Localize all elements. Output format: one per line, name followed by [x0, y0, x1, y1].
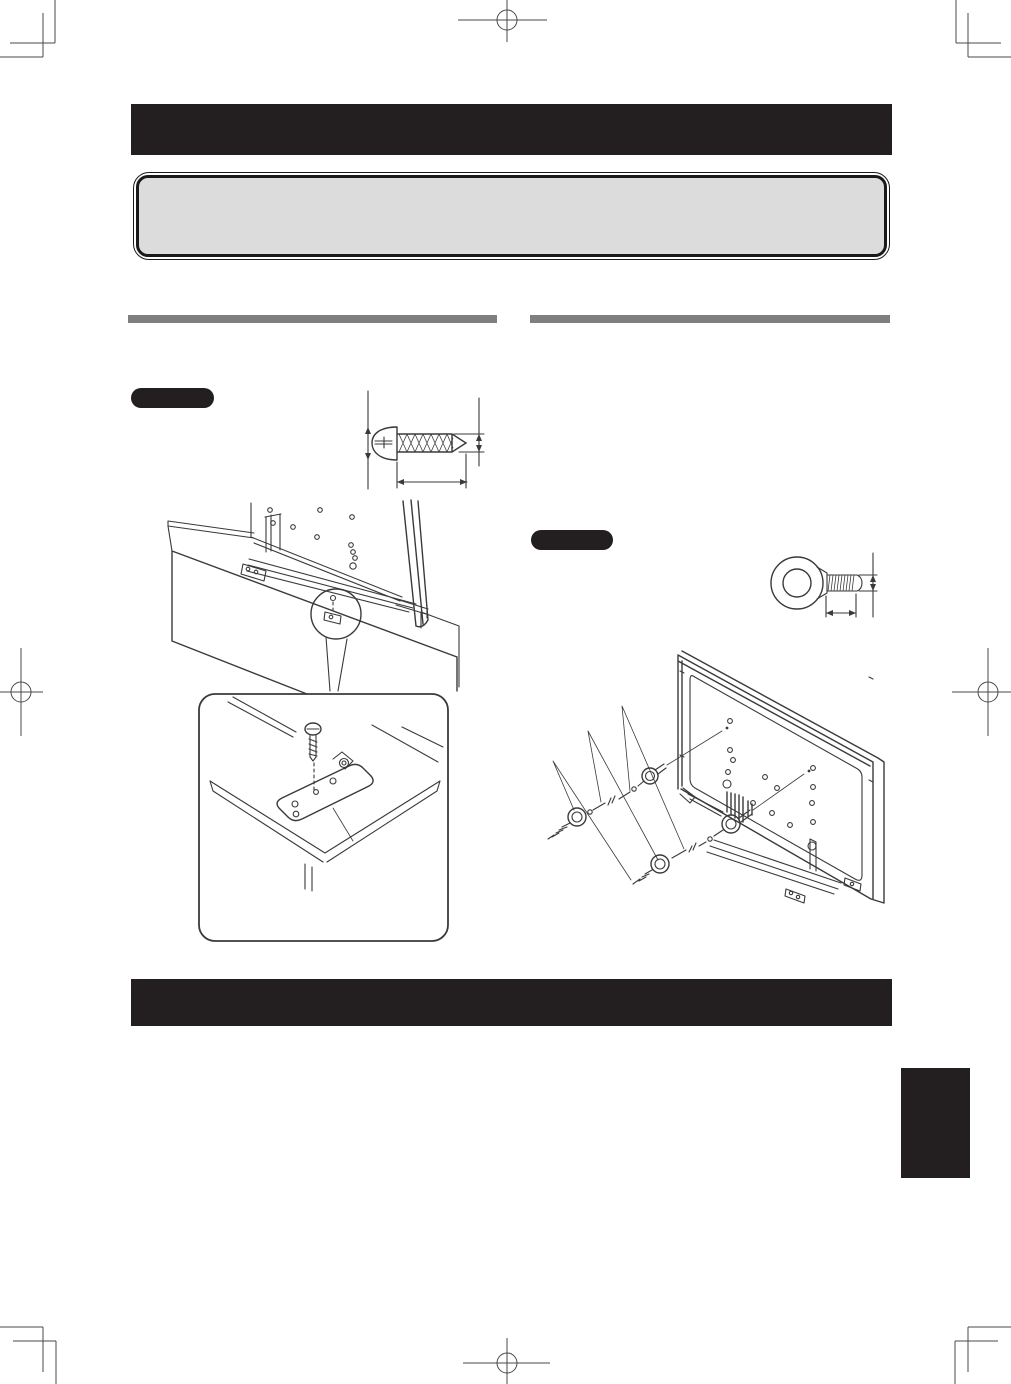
screw-dimension-diagram: [365, 391, 484, 489]
wall-tether-diagram: [548, 651, 884, 903]
string-lower: [672, 830, 723, 858]
manual-page: [0, 0, 1011, 1384]
page-line-art: [0, 0, 1011, 1384]
wall-screw-upper: [548, 808, 586, 839]
eye-bolt-upper: [642, 727, 728, 784]
magnifier-circle: [311, 589, 361, 639]
string-upper: [588, 781, 644, 814]
eye-bolt-dimension-diagram: [771, 553, 877, 617]
back-panel-holes: [268, 508, 358, 570]
leader-lines: [553, 706, 684, 880]
bracket-detail-callout: [199, 694, 448, 941]
wall-screw-lower: [633, 855, 669, 884]
cabinet-diagram: [168, 500, 459, 694]
registration-marks: [0, 0, 1011, 1384]
screw-thread-hatch: [399, 434, 453, 452]
